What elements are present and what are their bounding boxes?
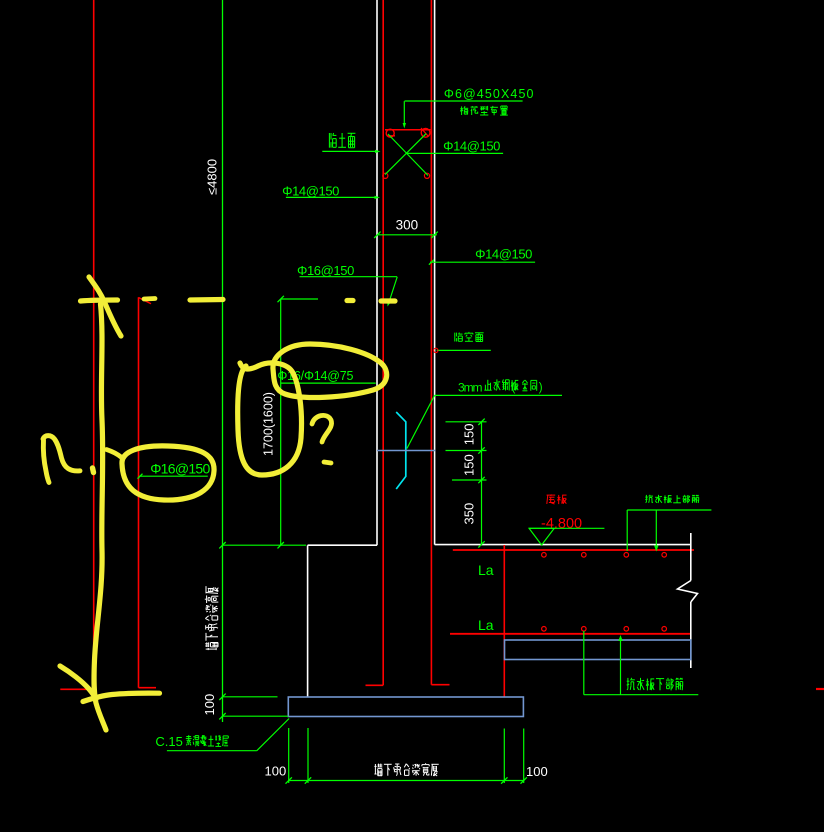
svg-text:): ) <box>539 382 543 394</box>
svg-text:≤4800: ≤4800 <box>205 159 220 195</box>
svg-text:La: La <box>478 617 494 633</box>
svg-text:300: 300 <box>396 218 419 233</box>
svg-text:Φ14@150: Φ14@150 <box>475 246 532 261</box>
svg-text:150: 150 <box>462 454 477 476</box>
svg-text:Φ14@150: Φ14@150 <box>443 138 500 153</box>
svg-text:150: 150 <box>462 423 477 445</box>
svg-text:3mm: 3mm <box>458 381 482 395</box>
svg-text:Φ16@150: Φ16@150 <box>297 263 354 278</box>
svg-text:100: 100 <box>265 764 287 779</box>
svg-text:1700(1600): 1700(1600) <box>262 392 276 456</box>
svg-text:100: 100 <box>526 764 548 779</box>
svg-text:Φ16@150: Φ16@150 <box>150 461 210 477</box>
svg-text:350: 350 <box>462 503 477 525</box>
svg-text:La: La <box>478 562 494 578</box>
svg-text:-4.800: -4.800 <box>541 516 582 532</box>
svg-text:Φ6@450X450: Φ6@450X450 <box>444 87 535 101</box>
svg-text:Φ14@150: Φ14@150 <box>282 183 339 198</box>
svg-text:100: 100 <box>202 694 217 716</box>
svg-text:C.15: C.15 <box>155 734 182 749</box>
svg-text:(: ( <box>512 382 516 394</box>
